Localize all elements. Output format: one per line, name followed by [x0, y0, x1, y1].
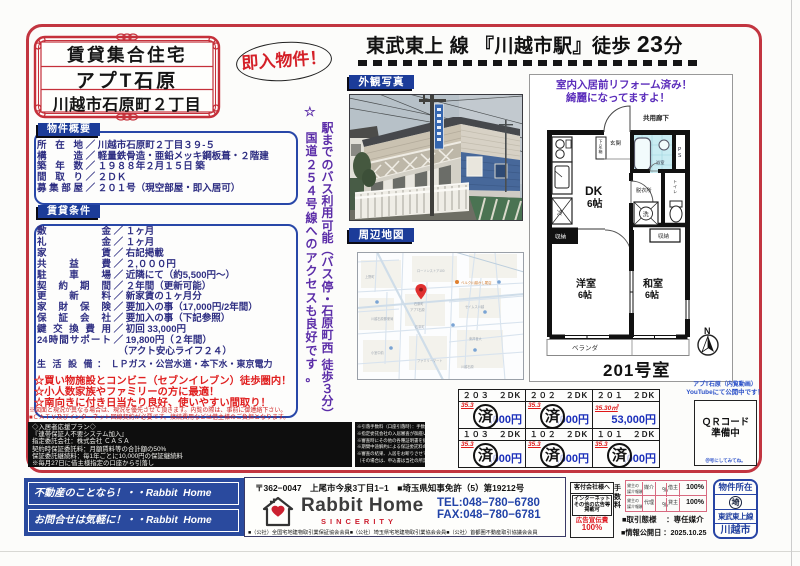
- svg-text:冷: 冷: [557, 209, 563, 217]
- svg-text:小室中前: 小室中前: [371, 350, 385, 355]
- svg-text:和室: 和室: [642, 277, 663, 290]
- svg-text:石原町: 石原町: [415, 324, 425, 329]
- svg-text:東邦音大: 東邦音大: [469, 336, 483, 341]
- svg-text:6帖: 6帖: [645, 289, 659, 300]
- svg-text:ローソンストア100: ローソンストア100: [417, 268, 445, 273]
- svg-text:レ: レ: [673, 189, 677, 194]
- svg-text:玄関: 玄関: [610, 139, 622, 147]
- svg-text:浴室: 浴室: [656, 159, 664, 166]
- svg-text:洗: 洗: [643, 211, 649, 219]
- svg-text:収納: 収納: [658, 232, 670, 240]
- svg-text:共用廊下: 共用廊下: [643, 113, 670, 122]
- svg-text:セイムス川越: セイムス川越: [465, 304, 485, 309]
- svg-text:S: S: [678, 153, 682, 159]
- svg-text:6帖: 6帖: [578, 289, 592, 300]
- svg-text:6帖: 6帖: [587, 197, 603, 210]
- svg-text:箱: 箱: [599, 148, 603, 154]
- svg-text:石原町: 石原町: [414, 301, 424, 306]
- svg-text:洋室: 洋室: [576, 277, 596, 290]
- svg-text:脱衣所: 脱衣所: [636, 186, 652, 194]
- svg-text:DK: DK: [585, 184, 603, 198]
- svg-text:アプT石原: アプT石原: [410, 307, 425, 312]
- svg-text:ファミリーマート: ファミリーマート: [417, 358, 443, 363]
- svg-text:ベルク川越かし尾店: ベルク川越かし尾店: [461, 280, 492, 285]
- svg-text:上野町: 上野町: [365, 274, 375, 279]
- svg-text:201号室: 201号室: [603, 360, 670, 380]
- svg-text:川越石原: 川越石原: [461, 364, 474, 369]
- svg-text:N: N: [704, 326, 711, 336]
- svg-text:収納: 収納: [555, 233, 567, 241]
- svg-text:川越石原郵便局: 川越石原郵便局: [371, 316, 393, 321]
- svg-text:ベランダ: ベランダ: [572, 343, 599, 352]
